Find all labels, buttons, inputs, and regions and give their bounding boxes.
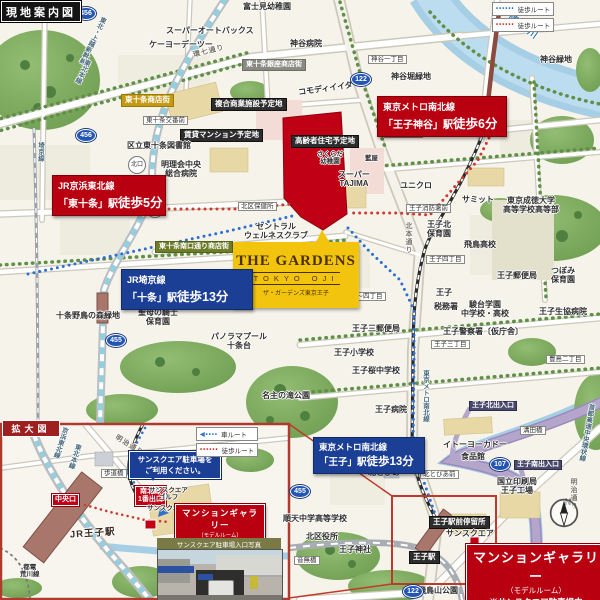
map-label: 王子神社 xyxy=(339,545,371,554)
map-label: 王子北出入口 xyxy=(469,401,517,411)
map-label: 王子消防署前 xyxy=(406,204,451,213)
map-label: 北とぴあ前 xyxy=(420,470,459,479)
legend-label: 徒歩ルート xyxy=(518,20,551,30)
map-label: 王子桜中学校 xyxy=(352,366,400,375)
property-subname: TOKYO OJI xyxy=(252,272,341,285)
photo-sign xyxy=(198,574,213,580)
station-box-higashijujo[interactable]: JR京浜東北線 「東十条」駅徒歩5分 xyxy=(52,175,166,216)
legend-row-walk-red: 徒歩ルート xyxy=(492,18,554,32)
map-label: さくらだ 幼稚園 xyxy=(317,151,343,166)
map-label: 富士見幼稚園 xyxy=(243,2,291,11)
gallery-note: ※サンスクエア駐車場内 xyxy=(470,596,600,600)
map-label: 王子北 保育園 xyxy=(427,220,451,238)
map-label: 十条野鳥の森緑地 xyxy=(56,311,120,320)
map-label: 都電 荒川線 xyxy=(20,564,40,579)
station-name: 「十条」駅 xyxy=(127,293,177,304)
map-label: サミット xyxy=(462,195,494,204)
gallery-box-main[interactable]: マンションギャラリー （モデルルーム） ※サンスクエア駐車場内 xyxy=(466,544,600,600)
station-line-name: 東京メトロ南北線 xyxy=(319,441,419,453)
map-label: スーパー TAJIMA xyxy=(338,170,370,188)
station-name: 「王子」駅 xyxy=(319,457,367,468)
map-label: 豊島二丁目 xyxy=(546,355,585,364)
map-label: 賃貸マンション予定地 xyxy=(180,129,263,142)
map-label: 北本通り xyxy=(404,222,412,254)
map-label: 区立東十条図書館 xyxy=(127,141,191,150)
map-label: 王子 xyxy=(436,288,452,297)
legend-row-walk: 徒歩ルート xyxy=(196,443,258,457)
gallery-title: マンションギャラリー xyxy=(470,547,600,585)
gallery-sub: （モデルルーム） xyxy=(470,585,600,596)
photo-sign xyxy=(158,566,194,573)
map-label: サンスクエア xyxy=(446,529,494,538)
map-label: 王子郵便局 xyxy=(497,271,537,280)
map-label: つぼみ 保育園 xyxy=(551,266,575,284)
walk-time: 徒歩5分 xyxy=(118,196,162,210)
map-label: パノラマプール 十条台 xyxy=(211,332,267,350)
map-label: 王子生協病院 xyxy=(539,307,587,316)
legend-label: 徒歩ルート xyxy=(222,445,255,455)
map-label: 駿台学園 中学校・高校 xyxy=(461,300,509,318)
map-label: 王子四丁目 xyxy=(426,255,465,264)
map-label: 藍屋 xyxy=(365,155,378,162)
map-label: 音無橋 xyxy=(294,556,320,565)
map-label: 東十条銀座商店街 xyxy=(242,59,306,71)
map-label: 名主の滝公園 xyxy=(262,391,310,400)
map-label: 歩道橋 xyxy=(101,469,127,478)
photo-road xyxy=(158,595,282,600)
map-label: 明理会中央 総合病院 xyxy=(161,160,201,178)
station-line-name: JR京浜東北線 xyxy=(58,179,160,192)
station-name: 「東十条」駅 xyxy=(58,199,118,210)
map-label: 王子警察署〔仮庁舎〕 xyxy=(443,327,523,336)
site-guide-map: スーパーオートバックスケーヨーデーツー富士見幼稚園神谷病院神谷緑地東十条銀座商店… xyxy=(0,0,600,600)
map-label: 神谷一丁目 xyxy=(368,55,407,64)
map-label: 神谷病院 xyxy=(290,39,322,48)
map-label: 神谷緑地 xyxy=(540,55,572,64)
map-label: サンスクエア ゴルフ xyxy=(149,487,188,502)
route-shield: 122 xyxy=(403,585,423,598)
legend-label: 徒歩ルート xyxy=(518,4,551,14)
map-label: 王子駅 xyxy=(409,551,440,564)
compass-rose-icon xyxy=(548,497,580,529)
legend-main: 徒歩ルート 徒歩ルート xyxy=(492,2,554,32)
route-shield: 455 xyxy=(106,334,126,347)
map-label: 北区役所 xyxy=(306,532,338,541)
map-label: 東十条商店街 xyxy=(121,94,174,107)
map-label: 王子三郵便局 xyxy=(352,324,400,333)
map-label: イトーヨーカドー xyxy=(443,440,507,449)
property-reading: ザ・ガーデンズ東京王子 xyxy=(263,288,329,297)
station-box-jujo[interactable]: JR埼京線 「十条」駅徒歩13分 xyxy=(121,269,253,310)
legend-inset: 車ルート 徒歩ルート xyxy=(196,427,258,457)
map-label: 税務署 xyxy=(434,302,458,311)
parking-photo-caption: サンスクエア駐車場入口写真 xyxy=(157,538,281,549)
blue-dotted-line-icon xyxy=(496,6,515,12)
map-label: 中央口 xyxy=(52,494,79,506)
map-label: 東十条交番前 xyxy=(143,116,188,125)
gallery-title: マンションギャラリー xyxy=(179,507,261,531)
map-label: 高齢者住宅予定地 xyxy=(291,135,359,148)
legend-row-walk-blue: 徒歩ルート xyxy=(492,2,554,16)
inset-title-badge: 拡大図 xyxy=(2,420,60,437)
map-label: 王子小学校 xyxy=(334,348,374,357)
walk-time: 徒歩13分 xyxy=(367,456,414,468)
photo-sign xyxy=(250,576,258,589)
station-line-name: 東京メトロ南北線 xyxy=(383,100,501,113)
legend-label: 車ルート xyxy=(221,429,247,439)
parking-photo xyxy=(157,549,283,600)
map-label: 聖母の騎士 保育園 xyxy=(138,308,178,326)
map-label: ケーヨーデーツー xyxy=(149,40,213,49)
map-label: 飛鳥高校 xyxy=(464,240,496,249)
map-label: 王子病院 xyxy=(375,405,407,414)
map-label: セントラル ウェルネスクラブ xyxy=(244,222,308,240)
route-shield: 456 xyxy=(76,129,96,142)
walk-time: 徒歩6分 xyxy=(453,117,497,131)
map-label: ユニクロ xyxy=(400,181,432,190)
legend-row-car: 車ルート xyxy=(196,427,258,441)
station-line-name: JR埼京線 xyxy=(127,273,247,286)
map-label: 神谷堀緑地 xyxy=(391,72,431,81)
callout-line2: ご利用ください。 xyxy=(131,465,219,476)
map-label: 飛鳥山公園 xyxy=(418,586,458,595)
red-dotted-line-icon xyxy=(496,22,515,28)
walk-time: 徒歩13分 xyxy=(177,290,228,304)
map-label: 北口 xyxy=(128,156,146,174)
compass: N xyxy=(548,497,588,547)
route-shield: 107 xyxy=(490,458,510,471)
map-label: 東京メトロ南北線 xyxy=(421,370,428,422)
map-label: スーパーオートバックス xyxy=(166,26,254,35)
map-label: 食品館 xyxy=(461,452,485,461)
map-label: 北区保健所 xyxy=(238,202,277,211)
route-shield: 455 xyxy=(290,485,310,498)
red-dotted-line-icon xyxy=(200,447,219,453)
map-label: 順天中学高等学校 xyxy=(283,514,347,523)
property-name: THE GARDENS xyxy=(236,253,356,270)
map-label: 王子南出入口 xyxy=(514,460,562,470)
station-box-ojikamiya[interactable]: 東京メトロ南北線 「王子神谷」駅徒歩6分 xyxy=(377,96,507,137)
map-label: 溝田橋 xyxy=(520,426,546,435)
map-label: 東京成徳大学 高等学校高等部 xyxy=(503,196,559,214)
map-label: 王子三丁目 xyxy=(431,340,470,349)
map-label: 埼京線 xyxy=(36,142,43,162)
station-name: 「王子神谷」駅 xyxy=(383,120,453,131)
route-shield: 122 xyxy=(351,73,371,86)
blue-arrow-dotted-line-icon xyxy=(200,431,218,438)
map-label: 国立印刷局 王子工場 xyxy=(497,477,537,495)
station-box-oji[interactable]: 東京メトロ南北線 「王子」駅徒歩13分 xyxy=(313,437,425,474)
map-title-badge: 現地案内図 xyxy=(0,0,82,23)
map-label: 複合商業施設予定地 xyxy=(211,98,287,111)
map-label: 東十条南口通り商店街 xyxy=(155,241,233,253)
map-label: 王子駅前停留所 xyxy=(429,516,490,529)
